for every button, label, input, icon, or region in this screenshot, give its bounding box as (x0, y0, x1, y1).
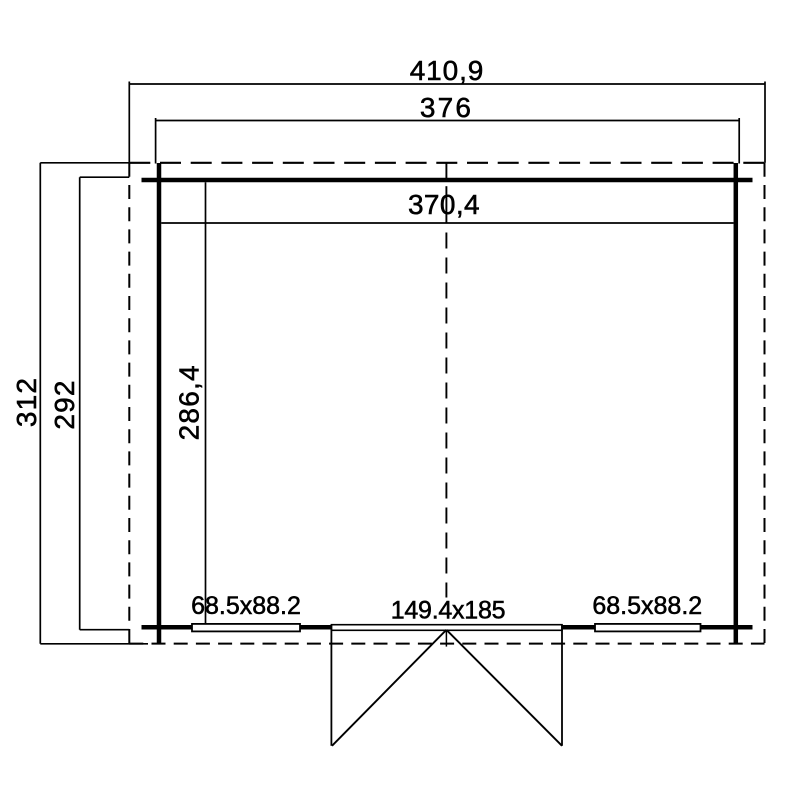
svg-text:410,9: 410,9 (410, 55, 485, 86)
svg-text:68.5x88.2: 68.5x88.2 (592, 592, 702, 620)
svg-text:312: 312 (11, 377, 42, 427)
svg-text:68.5x88.2: 68.5x88.2 (191, 592, 301, 620)
svg-text:149.4x185: 149.4x185 (391, 596, 506, 624)
svg-text:292: 292 (49, 379, 80, 429)
svg-text:286,4: 286,4 (174, 364, 205, 440)
svg-text:376: 376 (420, 92, 473, 123)
svg-text:370,4: 370,4 (408, 189, 480, 220)
